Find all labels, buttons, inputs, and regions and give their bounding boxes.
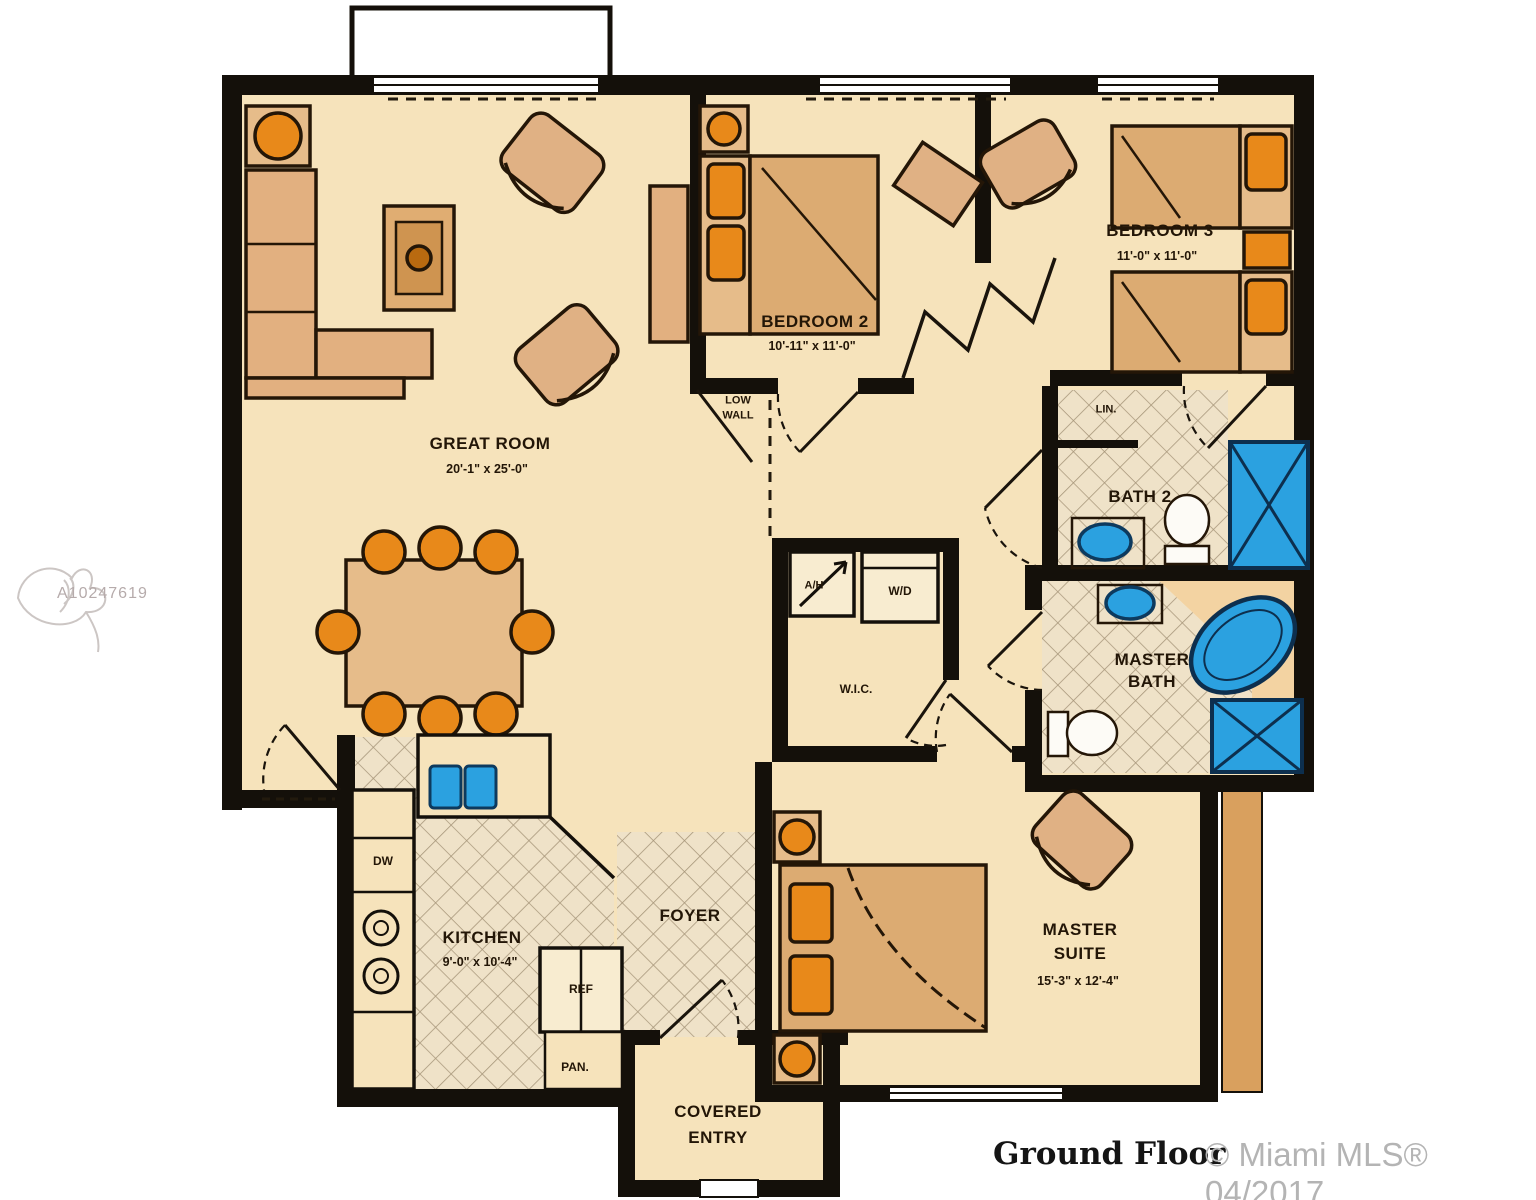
floor-title: Ground Floor [993, 1136, 1226, 1172]
bed [750, 156, 878, 334]
dishwasher-label: DW [373, 855, 393, 869]
pillow [790, 884, 832, 942]
sofa-section [246, 378, 404, 398]
plant [255, 113, 301, 159]
pillow [1246, 134, 1286, 190]
side-walkway [1222, 790, 1262, 1092]
nightstand [1244, 232, 1290, 268]
low-wall-label-1: LOW [725, 395, 751, 408]
tv-console [650, 186, 688, 342]
master-bath-label-2: BATH [1128, 672, 1176, 692]
kitchen-dims: 9'-0" x 10'-4" [443, 955, 518, 969]
covered-entry-label-2: ENTRY [688, 1128, 748, 1148]
refrigerator-label: REF [569, 983, 593, 997]
floor-plan-drawing [0, 0, 1536, 1200]
master-bath-label-1: MASTER [1115, 650, 1190, 670]
wic-label: W.I.C. [840, 683, 873, 697]
bedroom2-dims: 10'-11" x 11'-0" [768, 339, 855, 353]
dining-table [346, 560, 522, 706]
master-suite-dims: 15'-3" x 12'-4" [1037, 974, 1119, 988]
toilet-tank [1165, 546, 1209, 564]
toilet-bowl [1067, 711, 1117, 755]
pillow [708, 164, 744, 218]
sink [1106, 587, 1154, 619]
sink-basin [465, 766, 496, 808]
kitchen-label: KITCHEN [442, 928, 521, 948]
floor-plan-canvas: GREAT ROOM 20'-1" x 25'-0" BEDROOM 2 10'… [0, 0, 1536, 1200]
mls-watermark-id: A10247619 [57, 585, 148, 603]
pillow [708, 226, 744, 280]
low-wall-label-2: WALL [722, 410, 753, 423]
air-handler-label: A/H [805, 580, 824, 593]
toilet-tank [1048, 712, 1068, 756]
bath2-label: BATH 2 [1108, 487, 1171, 507]
sofa-section [316, 330, 432, 378]
sofa-section [246, 170, 316, 378]
covered-entry-label-1: COVERED [674, 1102, 762, 1122]
mls-copyright: © Miami MLS® 04/2017 [1205, 1136, 1536, 1200]
counter [352, 790, 414, 1089]
great-room-label: GREAT ROOM [430, 434, 551, 454]
toilet-bowl [1165, 495, 1209, 545]
pillow [790, 956, 832, 1014]
great-room-dims: 20'-1" x 25'-0" [446, 462, 528, 476]
bedroom3-dims: 11'-0" x 11'-0" [1117, 249, 1197, 263]
mls-logo [18, 569, 105, 652]
sink [1079, 524, 1131, 560]
linen-label: LIN. [1096, 404, 1117, 417]
pillow [1246, 280, 1286, 334]
bedroom2-label: BEDROOM 2 [761, 312, 868, 332]
sink-basin [430, 766, 461, 808]
master-suite-label-2: SUITE [1054, 944, 1107, 964]
pantry-label: PAN. [561, 1061, 589, 1075]
washer-dryer-label: W/D [888, 585, 911, 599]
foyer-label: FOYER [659, 906, 720, 926]
master-suite-label-1: MASTER [1043, 920, 1118, 940]
bedroom3-label: BEDROOM 3 [1106, 221, 1213, 241]
